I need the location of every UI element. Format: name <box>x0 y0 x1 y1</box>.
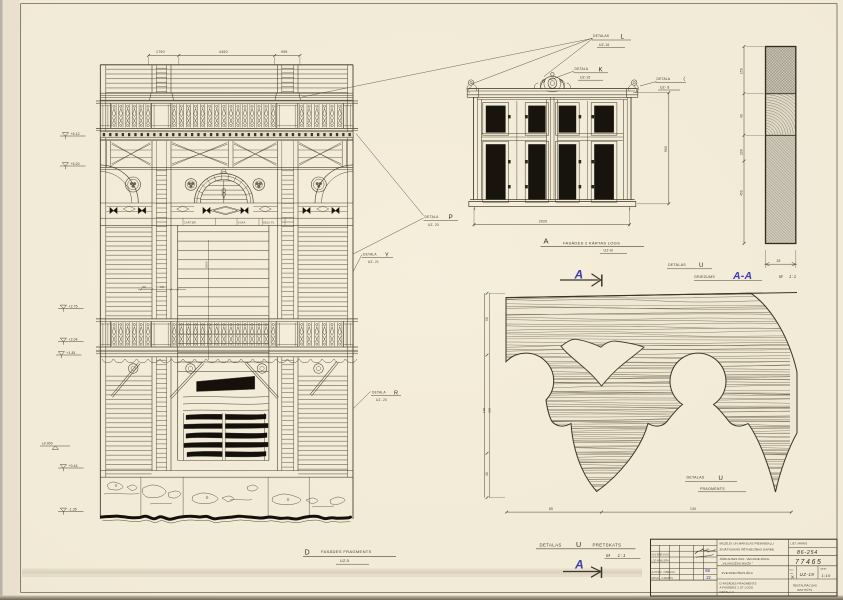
svg-text:ZINĀTNISKĀS PĒTNIECĪBAS DARB: ZINĀTNISKĀS PĒTNIECĪBAS DARBN. <box>720 548 776 552</box>
svg-text:A: A <box>544 237 549 246</box>
svg-text:D: D <box>305 548 311 557</box>
svg-text:40: 40 <box>485 472 489 476</box>
svg-text:U: U <box>576 540 581 549</box>
svg-text:„VILKMUIŽAS MUIŽA ”: „VILKMUIŽAS MUIŽA ” <box>722 561 753 566</box>
svg-text:INSTITŪTS: INSTITŪTS <box>797 588 812 592</box>
svg-text:±0.000: ±0.000 <box>42 442 53 446</box>
svg-text:+6.12: +6.12 <box>71 132 80 136</box>
svg-text:GRIEZUMS: GRIEZUMS <box>694 275 715 279</box>
svg-text:FASĀDES FRAGMENTS: FASĀDES FRAGMENTS <box>321 549 372 554</box>
svg-text:DETALAS: DETALAS <box>593 34 610 38</box>
svg-text:DETALA: DETALA <box>425 215 440 219</box>
svg-text:56: 56 <box>705 568 711 573</box>
svg-text:RESTAURĀCIJAS: RESTAURĀCIJAS <box>793 584 817 588</box>
svg-text:J.LIEPA: J.LIEPA <box>661 559 670 562</box>
svg-text:HELK.PL: HELK.PL <box>263 221 275 225</box>
svg-text:86-254: 86-254 <box>797 550 818 556</box>
svg-text:PRETSKATS: PRETSKATS <box>593 543 622 548</box>
svg-text:L: L <box>621 34 625 41</box>
svg-text:DETALA: DETALA <box>372 391 386 395</box>
svg-text:AUTORS: AUTORS <box>652 571 662 574</box>
svg-text:LAPAS: LAPAS <box>820 568 827 571</box>
svg-text:A-A: A-A <box>732 270 752 282</box>
svg-text:A: A <box>574 267 584 281</box>
svg-text:UZ- 20: UZ- 20 <box>376 398 387 402</box>
svg-text:1:1: 1:1 <box>618 553 627 558</box>
svg-text:900: 900 <box>142 286 147 289</box>
svg-text:UZ-5: UZ-5 <box>340 559 349 563</box>
svg-text:DETALAS: DETALAS <box>687 476 705 480</box>
svg-text:JŪRKALNES PAG. VECAINE FRAG.: JŪRKALNES PAG. VECAINE FRAG. <box>720 557 771 561</box>
svg-text:Y: Y <box>385 253 389 259</box>
svg-text:IZPILD.: IZPILD. <box>652 578 660 580</box>
svg-text:DETAĻA U: DETAĻA U <box>720 590 735 594</box>
svg-text:200: 200 <box>487 407 491 413</box>
svg-text:LIET. ARHĪVS: LIET. ARHĪVS <box>791 542 808 545</box>
svg-text:995: 995 <box>281 50 288 54</box>
svg-text:DETALA: DETALA <box>657 77 671 81</box>
svg-text:31: 31 <box>706 575 712 580</box>
svg-text:+5.20: +5.20 <box>71 162 80 166</box>
svg-text:FRAGMENTS: FRAGMENTS <box>700 487 725 491</box>
svg-text:1:1: 1:1 <box>789 274 797 279</box>
svg-text:1790: 1790 <box>156 50 165 54</box>
svg-text:450: 450 <box>740 190 744 196</box>
svg-text:UZ- 21: UZ- 21 <box>368 260 379 264</box>
svg-text:A.ZEMITIS: A.ZEMITIS <box>662 577 674 580</box>
svg-text:4450: 4450 <box>219 50 228 54</box>
svg-text:+0.44: +0.44 <box>69 464 78 468</box>
svg-text:FASĀDES 2 KĀRTAS LOGS: FASĀDES 2 KĀRTAS LOGS <box>563 240 620 245</box>
svg-text:A: A <box>574 557 584 571</box>
svg-text:85: 85 <box>549 507 553 511</box>
svg-text:100: 100 <box>482 407 486 413</box>
svg-text:DETALAS: DETALAS <box>668 263 686 267</box>
svg-text:Burt.: Burt. <box>790 569 795 572</box>
svg-text:90: 90 <box>485 317 489 321</box>
svg-text:UZ- 8: UZ- 8 <box>660 85 669 89</box>
svg-text:mēr.: mēr. <box>790 572 794 575</box>
svg-text:2020: 2020 <box>539 219 548 223</box>
svg-text:+2.75: +2.75 <box>69 305 78 309</box>
svg-text:〈: 〈 <box>681 77 686 83</box>
svg-text:-1.35: -1.35 <box>69 508 77 512</box>
svg-text:M: M <box>606 553 610 558</box>
svg-text:DETALA: DETALA <box>575 67 589 71</box>
svg-text:P: P <box>449 214 453 221</box>
svg-text:KOKA: KOKA <box>238 221 246 225</box>
svg-text:130: 130 <box>690 507 696 511</box>
svg-text:1:10: 1:10 <box>822 573 831 578</box>
svg-text:MUZEJU UN MĀKSLAS PIEMINEKĻ: MUZEJU UN MĀKSLAS PIEMINEKĻU <box>720 542 774 546</box>
svg-text:40: 40 <box>740 114 744 118</box>
svg-text:+1.81: +1.81 <box>67 351 76 355</box>
svg-text:ZVEJNIECĪBAS ĒKA: ZVEJNIECĪBAS ĒKA <box>722 571 754 575</box>
svg-text:U: U <box>699 263 704 269</box>
svg-text:28: 28 <box>777 259 781 263</box>
svg-text:+2.04: +2.04 <box>69 338 78 342</box>
svg-text:CART.BR: CART.BR <box>184 221 196 225</box>
svg-text:2600: 2600 <box>204 261 208 268</box>
svg-text:UZ-19: UZ-19 <box>800 572 815 577</box>
svg-text:DETALAS: DETALAS <box>540 543 562 548</box>
svg-text:K: K <box>599 66 604 73</box>
svg-text:900: 900 <box>664 146 668 152</box>
svg-text:U: U <box>719 476 724 482</box>
svg-text:UZ-B: UZ-B <box>604 248 614 252</box>
svg-text:M: M <box>779 274 783 279</box>
svg-text:K.VILKS: K.VILKS <box>661 555 670 557</box>
svg-text:I. ZUBEVICA: I. ZUBEVICA <box>662 571 676 574</box>
svg-text:UZ-16: UZ-16 <box>599 43 609 47</box>
svg-text:200: 200 <box>740 149 744 155</box>
svg-text:77465: 77465 <box>795 559 822 566</box>
svg-text:4.88: 4.88 <box>706 549 710 551</box>
svg-text:UZ-15: UZ-15 <box>580 76 590 80</box>
svg-text:R: R <box>394 391 398 397</box>
svg-text:150: 150 <box>740 68 744 74</box>
svg-text:DETALA: DETALA <box>363 253 377 257</box>
svg-text:UZ- 20: UZ- 20 <box>428 223 439 227</box>
svg-text:450: 450 <box>160 286 165 289</box>
